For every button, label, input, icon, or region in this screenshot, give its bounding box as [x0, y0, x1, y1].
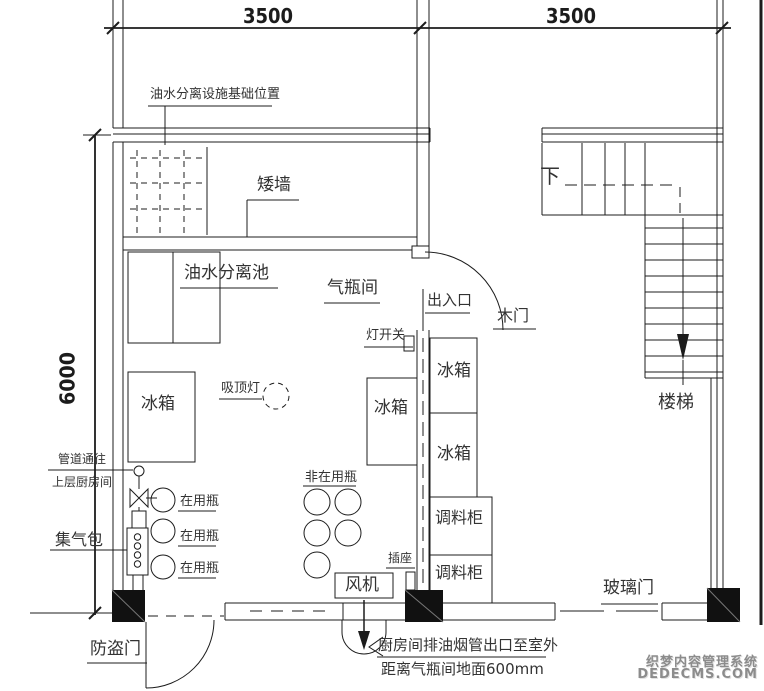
fridge-label-corridor-2: 冰箱 — [437, 446, 471, 464]
stairs-label: 楼梯 — [658, 394, 694, 413]
watermark-line2: DEDECMS.COM — [637, 667, 758, 682]
ceiling-lamp-label: 吸顶灯 — [221, 382, 260, 396]
dim-top-right: 3500 — [544, 6, 598, 27]
wooden-door-label: 木门 — [497, 308, 529, 325]
fridge-label-left: 冰箱 — [141, 396, 175, 414]
dim-top-left: 3500 — [241, 6, 295, 27]
socket-label: 插座 — [388, 552, 412, 565]
seasoning-cabinet-label-2: 调料柜 — [435, 565, 483, 582]
floor-plan-canvas: 3500 3500 6000 油水分离设施基础位置 矮墙 油水分离池 气瓶间 出… — [0, 0, 764, 691]
in-use-bottle-label-3: 在用瓶 — [180, 562, 219, 576]
pipe-note-line1: 管道通往 — [58, 453, 106, 466]
low-wall-label: 矮墙 — [257, 177, 291, 195]
fridge-label-corridor-1: 冰箱 — [437, 363, 471, 381]
fan-label: 风机 — [345, 577, 379, 595]
exhaust-note-line1: 厨房间排油烟管出口至室外 — [378, 638, 558, 654]
stairs-down-label: 下 — [540, 166, 560, 187]
fridge-label-main: 冰箱 — [374, 400, 408, 418]
oil-water-base-note: 油水分离设施基础位置 — [150, 88, 280, 102]
gas-cylinder-room-label: 气瓶间 — [327, 280, 378, 298]
entrance-label: 出入口 — [427, 293, 472, 309]
pipe-note-line2: 上层厨房间 — [52, 476, 112, 489]
dim-left-height: 6000 — [58, 342, 79, 414]
not-in-use-bottle-label: 非在用瓶 — [305, 471, 357, 485]
security-door-label: 防盗门 — [90, 641, 141, 659]
glass-door-label: 玻璃门 — [603, 580, 654, 598]
gas-collector-label: 集气包 — [55, 532, 103, 549]
in-use-bottle-label-2: 在用瓶 — [180, 530, 219, 544]
exhaust-note-line2: 距离气瓶间地面600mm — [381, 662, 544, 678]
oil-water-pool-label: 油水分离池 — [184, 265, 269, 283]
seasoning-cabinet-label-1: 调料柜 — [435, 510, 483, 527]
light-switch-label: 灯开关 — [366, 329, 405, 343]
in-use-bottle-label-1: 在用瓶 — [180, 495, 219, 509]
